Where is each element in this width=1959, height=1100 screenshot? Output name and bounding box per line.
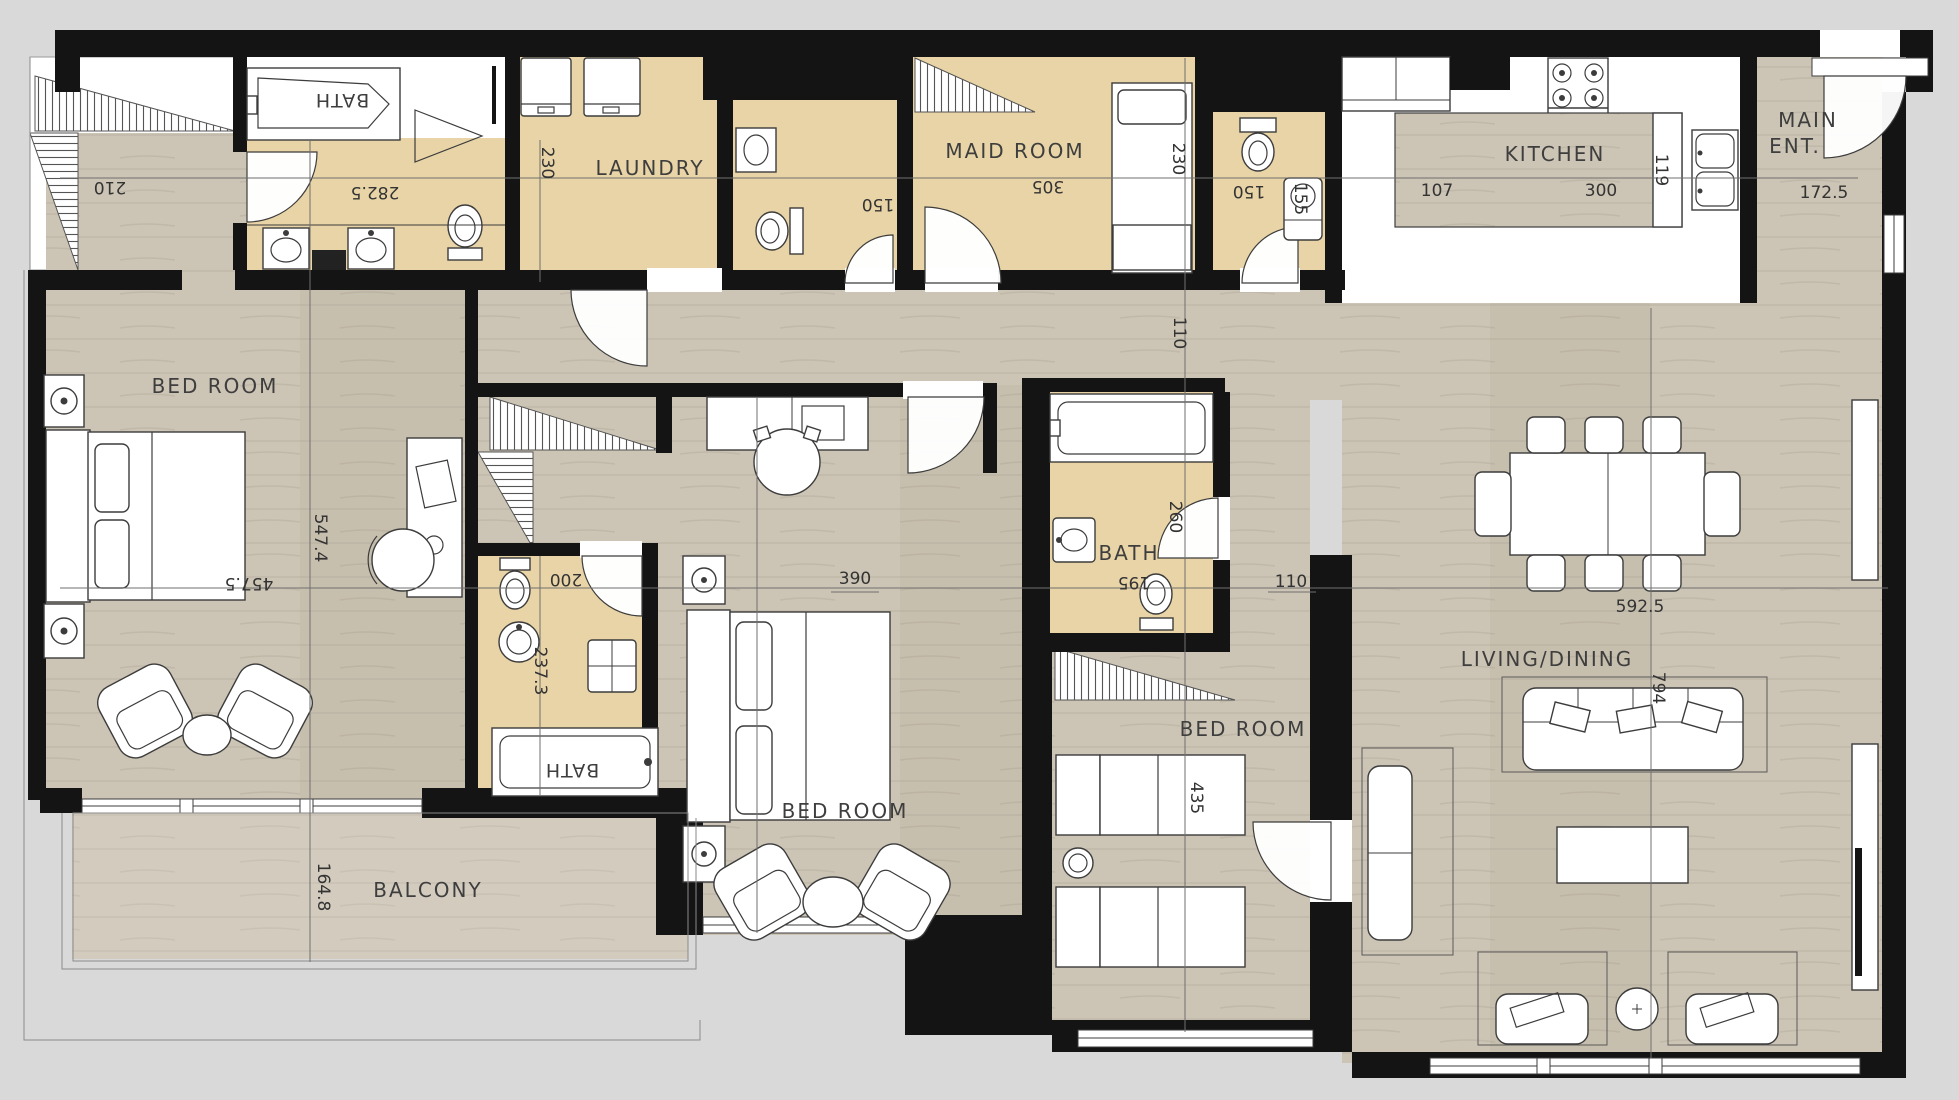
dim-bedr: 435: [1186, 782, 1206, 814]
living-window: [1430, 1058, 1860, 1074]
bed-headboard: [687, 610, 730, 822]
dim-wc2-d: 155: [1290, 183, 1310, 215]
room-label-bath-middle: BATH: [545, 759, 599, 781]
dining-chair: [1643, 417, 1681, 453]
dim-corridor: 110: [1169, 317, 1189, 349]
tv-icon: [1855, 848, 1862, 976]
bed-headboard: [1056, 887, 1100, 967]
room-label-main-ent-1: MAIN: [1778, 108, 1838, 132]
bathtub-faucet-icon: [1050, 420, 1060, 436]
room-label-bedroom-left: BED ROOM: [152, 374, 279, 398]
pillow: [1118, 90, 1186, 124]
room-label-maid: MAID ROOM: [945, 139, 1084, 163]
single-bed: [1100, 755, 1245, 835]
dim-kitchen-c: 119: [1651, 154, 1671, 186]
dim-bedm-w: 390: [839, 569, 871, 589]
bed-headboard: [1056, 755, 1100, 835]
dining-chair: [1585, 417, 1623, 453]
room-label-kitchen: KITCHEN: [1505, 142, 1606, 166]
bathtub-faucet-icon: [247, 96, 257, 114]
dim-kitchen-a: 107: [1421, 181, 1453, 201]
bed-quilt: [1113, 225, 1191, 270]
sideboard: [1852, 400, 1878, 580]
dim-bedl-h: 547.4: [310, 514, 330, 563]
pillow: [736, 622, 772, 710]
dim-hall: 110: [1275, 572, 1307, 592]
dim-stairs: 210: [94, 177, 126, 197]
dim-living-w: 592.5: [1616, 597, 1665, 617]
floor-plan-canvas: BATH LAUNDRY MAID ROOM KITCHEN MAIN ENT.…: [0, 0, 1959, 1100]
dim-bathm-b: 237.3: [530, 647, 550, 696]
dining-chair: [1527, 417, 1565, 453]
toilet-tank: [500, 558, 530, 570]
room-label-bedroom-right: BED ROOM: [1180, 717, 1307, 741]
dim-laundry: 230: [537, 147, 557, 179]
dim-wc2-w: 150: [1233, 181, 1265, 201]
toilet-tank: [790, 208, 803, 254]
single-bed: [1100, 887, 1245, 967]
dining-chair: [1585, 555, 1623, 591]
room-label-main-ent-2: ENT.: [1769, 134, 1821, 158]
double-sink: [1692, 130, 1738, 210]
dim-wc1: 150: [862, 194, 894, 214]
side-window: [1884, 215, 1904, 273]
toilet-tank: [1240, 118, 1276, 132]
entry-lintel: [1812, 58, 1928, 76]
dim-maid-w: 305: [1032, 176, 1064, 196]
desk-chair: [372, 529, 434, 591]
bed-headboard: [46, 430, 90, 602]
bathtub-drain-icon: [644, 758, 652, 766]
dim-bathc-a: 260: [1165, 501, 1185, 533]
bathtub: [1050, 394, 1213, 462]
side-table: [1063, 848, 1093, 878]
dim-entry: 172.5: [1800, 183, 1849, 203]
toilet-tank: [448, 248, 482, 260]
entry-opening: [1820, 30, 1900, 57]
room-label-balcony: BALCONY: [373, 878, 482, 902]
floor-plan-drawing: BATH LAUNDRY MAID ROOM KITCHEN MAIN ENT.…: [0, 0, 1959, 1100]
vestibule-floor: [1230, 392, 1310, 650]
pillow: [95, 520, 129, 588]
dim-kitchen-b: 300: [1585, 181, 1617, 201]
dim-living-h: 794: [1648, 672, 1668, 704]
vanity-divider: [312, 250, 346, 270]
room-label-bedroom-middle: BED ROOM: [782, 799, 909, 823]
room-label-bath-center: BATH: [1098, 541, 1159, 565]
coffee-table: [1557, 827, 1688, 883]
dim-maid-d: 230: [1168, 143, 1188, 175]
pillow: [95, 444, 129, 512]
dim-bedl-w: 457.5: [225, 573, 274, 593]
dining-chair: [1704, 472, 1740, 536]
side-table: [803, 877, 863, 927]
pillow: [736, 726, 772, 814]
dim-ensuite: 282.5: [351, 182, 400, 202]
room-label-laundry: LAUNDRY: [595, 156, 704, 180]
kitchen-island: [1395, 113, 1682, 227]
dining-chair: [1475, 472, 1511, 536]
side-table: [183, 715, 231, 755]
dining-chair: [1643, 555, 1681, 591]
bedroom-right-window: [1078, 1030, 1313, 1047]
room-label-bath-ensuite: BATH: [315, 89, 369, 111]
laundry-door-opening: [647, 268, 722, 292]
wall-chunk: [1450, 57, 1510, 90]
dim-bathm-a: 200: [550, 569, 582, 589]
bedroom-middle-door-opening: [903, 381, 983, 399]
dining-chair: [1527, 555, 1565, 591]
balcony-window: [82, 799, 422, 813]
dim-balcony: 164.8: [313, 863, 333, 912]
toilet-tank: [1140, 618, 1173, 630]
tint-band: [1490, 303, 1650, 1060]
dim-bathc-b: 195: [1118, 572, 1150, 592]
room-label-living: LIVING/DINING: [1461, 647, 1633, 671]
